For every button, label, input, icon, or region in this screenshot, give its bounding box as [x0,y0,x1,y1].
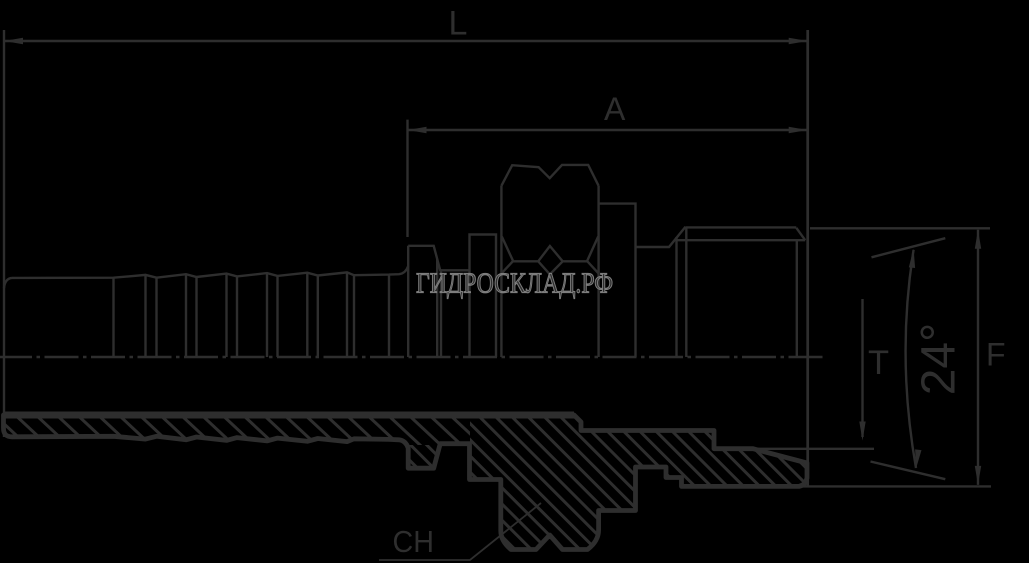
svg-text:L: L [449,5,468,43]
svg-text:A: A [604,91,626,127]
svg-text:24°: 24° [913,323,966,396]
svg-text:CH: CH [393,524,435,559]
svg-text:T: T [868,344,889,382]
svg-text:F: F [986,337,1006,373]
svg-text:ГИДРОСКЛАД.РФ: ГИДРОСКЛАД.РФ [416,268,613,300]
